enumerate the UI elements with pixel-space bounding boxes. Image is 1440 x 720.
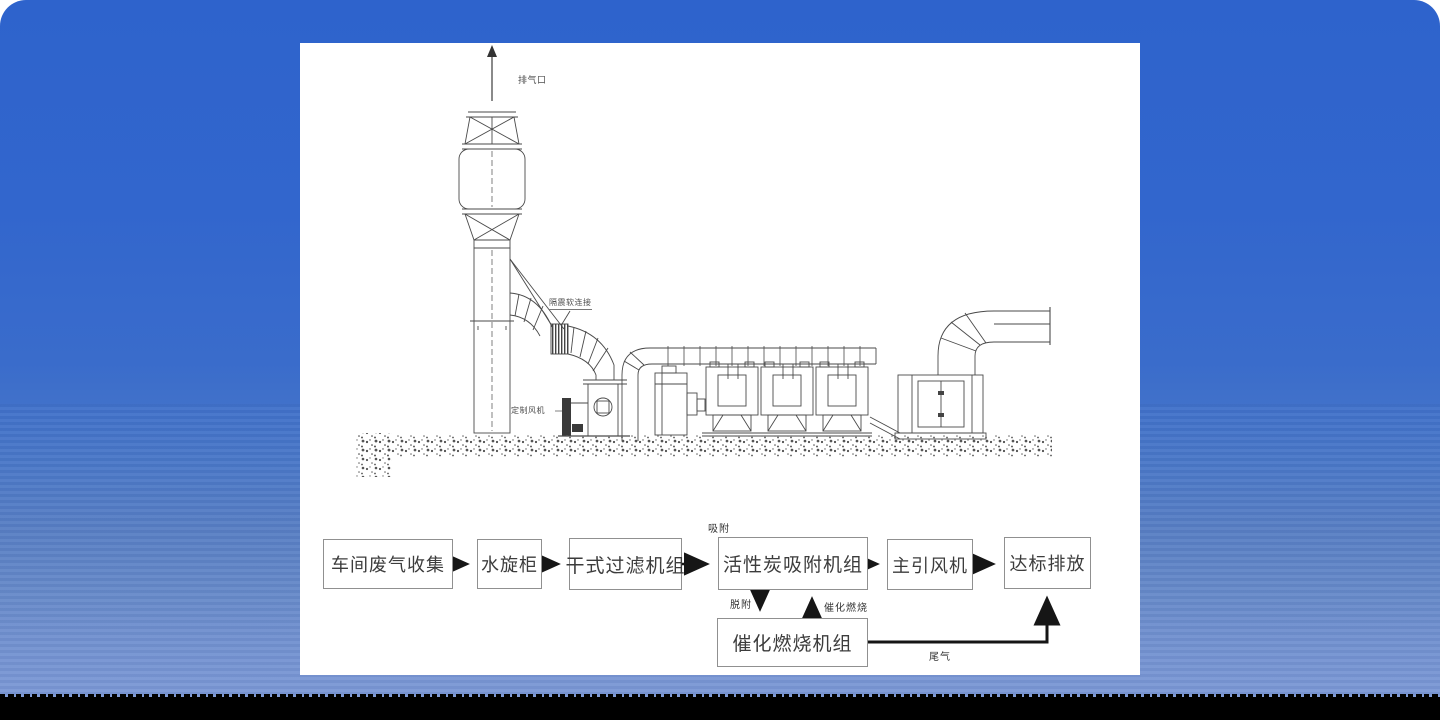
flow-box-dry-filter-unit: 干式过滤机组 xyxy=(569,538,682,590)
label-tail-gas: 尾气 xyxy=(929,648,951,663)
adsorption-modules xyxy=(650,346,900,439)
diagram-panel: 排气口 隔震软连接 定制风机 车间废气收集 水旋柜 干式过滤机组 活性炭吸附机组… xyxy=(300,43,1140,675)
label-custom-fan: 定制风机 xyxy=(511,405,545,416)
flow-box-main-draft-fan: 主引风机 xyxy=(887,539,973,590)
label-desorption: 脱附 xyxy=(730,596,752,611)
page: 排气口 隔震软连接 定制风机 车间废气收集 水旋柜 干式过滤机组 活性炭吸附机组… xyxy=(0,0,1440,720)
flow-box-activated-carbon-adsorption-unit: 活性炭吸附机组 xyxy=(718,537,868,590)
flow-box-catalytic-combustion-unit: 催化燃烧机组 xyxy=(717,618,868,667)
flow-box-compliant-discharge: 达标排放 xyxy=(1004,537,1091,589)
label-catalytic-combustion: 催化燃烧 xyxy=(824,599,868,614)
flow-box-workshop-gas-collection: 车间废气收集 xyxy=(323,539,453,589)
combustion-unit-and-outlet-duct xyxy=(895,307,1050,439)
label-exhaust-outlet: 排气口 xyxy=(518,73,547,86)
stack-assembly xyxy=(459,45,564,433)
label-adsorption: 吸附 xyxy=(708,520,730,535)
bottom-black-bar xyxy=(0,697,1440,720)
label-vibration-flex-connection: 隔震软连接 xyxy=(549,297,592,310)
flow-box-water-spray-cabinet: 水旋柜 xyxy=(477,539,542,589)
duct-and-fan xyxy=(510,293,652,441)
ground-stipple xyxy=(356,433,1052,477)
